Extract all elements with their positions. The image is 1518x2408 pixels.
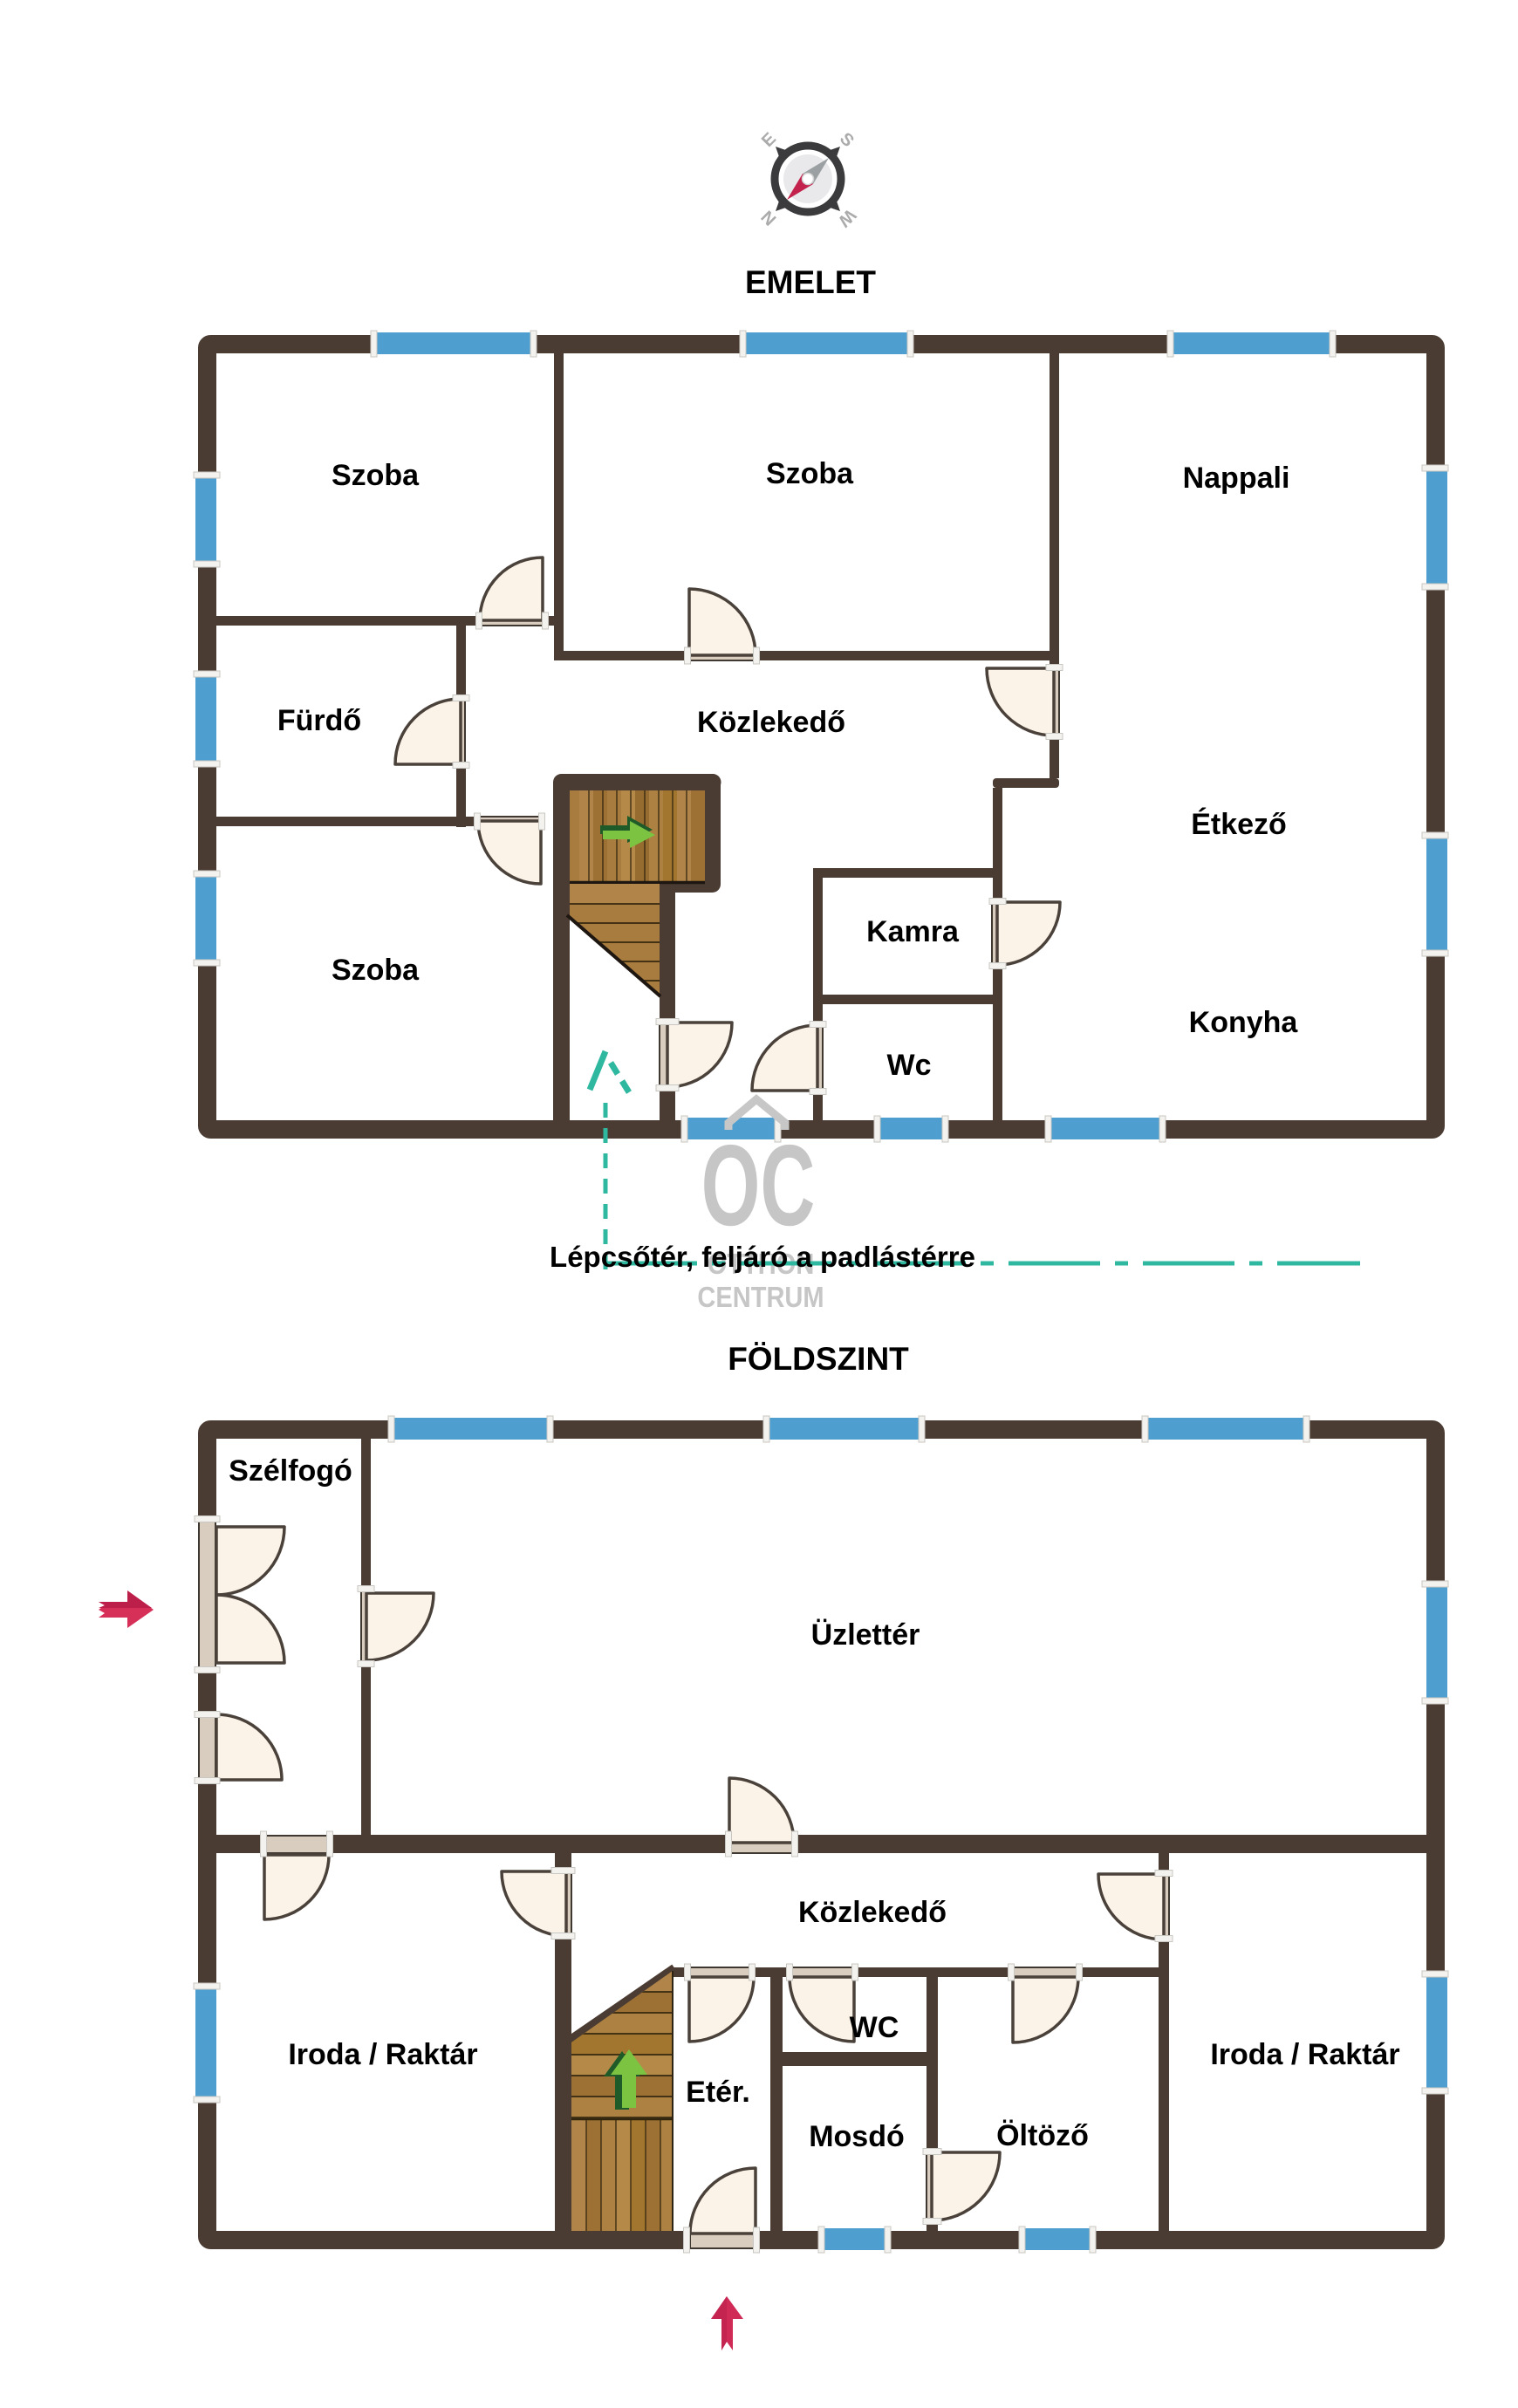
svg-text:CENTRUM: CENTRUM	[697, 1281, 824, 1313]
svg-text:Közlekedő: Közlekedő	[798, 1896, 947, 1929]
svg-text:Szoba: Szoba	[332, 459, 420, 492]
svg-text:Közlekedő: Közlekedő	[697, 706, 845, 739]
svg-text:Iroda / Raktár: Iroda / Raktár	[288, 2038, 477, 2071]
svg-text:Nappali: Nappali	[1183, 462, 1290, 495]
svg-text:Étkező: Étkező	[1191, 808, 1287, 841]
svg-text:Konyha: Konyha	[1189, 1006, 1299, 1039]
svg-text:Etér.: Etér.	[686, 2076, 750, 2109]
svg-text:Öltöző: Öltöző	[996, 2119, 1089, 2152]
svg-text:Lépcsőtér, feljáró a padlástér: Lépcsőtér, feljáró a padlástérre	[550, 1241, 975, 1273]
svg-text:Mosdó: Mosdó	[809, 2120, 905, 2153]
svg-text:Szélfogó: Szélfogó	[229, 1454, 352, 1488]
svg-text:Üzlettér: Üzlettér	[811, 1618, 920, 1652]
svg-text:EMELET: EMELET	[745, 264, 876, 300]
svg-text:Iroda / Raktár: Iroda / Raktár	[1210, 2038, 1399, 2071]
svg-text:WC: WC	[850, 2011, 899, 2044]
svg-text:Szoba: Szoba	[332, 954, 420, 987]
svg-text:Szoba: Szoba	[766, 457, 854, 490]
svg-text:Fürdő: Fürdő	[277, 704, 361, 737]
svg-text:FÖLDSZINT: FÖLDSZINT	[728, 1341, 909, 1377]
svg-text:OC: OC	[701, 1121, 816, 1250]
svg-text:Wc: Wc	[887, 1049, 932, 1082]
svg-text:Kamra: Kamra	[866, 915, 960, 948]
